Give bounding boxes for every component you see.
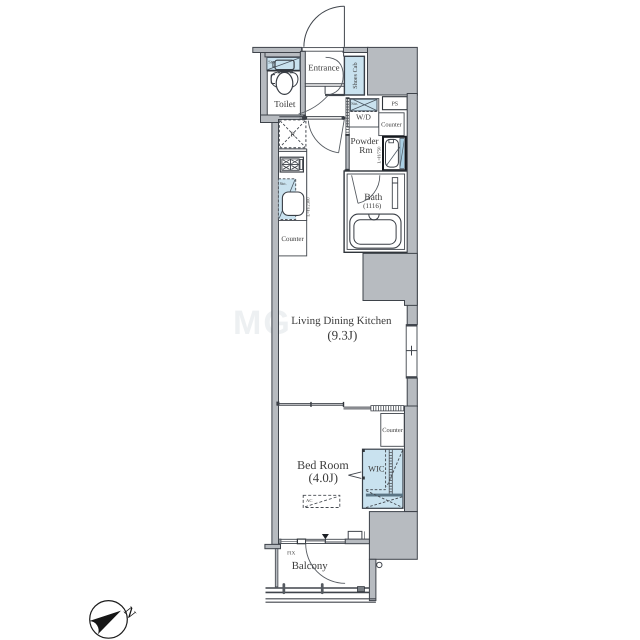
svg-text:Sto.: Sto. xyxy=(351,101,358,106)
svg-text:MG: MG xyxy=(233,304,292,342)
svg-text:Bath: Bath xyxy=(364,192,382,203)
svg-text:PS: PS xyxy=(391,102,398,108)
svg-text:FIX: FIX xyxy=(287,551,295,557)
svg-text:W/D: W/D xyxy=(356,113,371,122)
svg-text:(1116): (1116) xyxy=(363,202,382,210)
svg-text:Counter: Counter xyxy=(281,235,304,243)
svg-text:AC: AC xyxy=(306,498,312,503)
svg-text:Rm: Rm xyxy=(359,145,372,155)
svg-text:Entrance: Entrance xyxy=(308,62,339,72)
svg-text:(9.3J): (9.3J) xyxy=(327,328,357,343)
svg-text:Counter: Counter xyxy=(381,122,402,129)
svg-text:Sto.: Sto. xyxy=(280,181,287,186)
svg-text:Bed Room: Bed Room xyxy=(297,458,349,472)
svg-text:Living Dining Kitchen: Living Dining Kitchen xyxy=(291,315,392,327)
svg-text:R: R xyxy=(290,131,295,139)
svg-text:WIC: WIC xyxy=(368,465,385,474)
svg-text:L=H/750: L=H/750 xyxy=(376,146,381,164)
svg-text:Toilet: Toilet xyxy=(274,99,296,109)
svg-text:L=H/2300: L=H/2300 xyxy=(305,197,310,217)
svg-text:Shoes Cab: Shoes Cab xyxy=(352,62,359,88)
svg-text:Counter: Counter xyxy=(382,427,403,434)
svg-text:(4.0J): (4.0J) xyxy=(309,471,339,485)
